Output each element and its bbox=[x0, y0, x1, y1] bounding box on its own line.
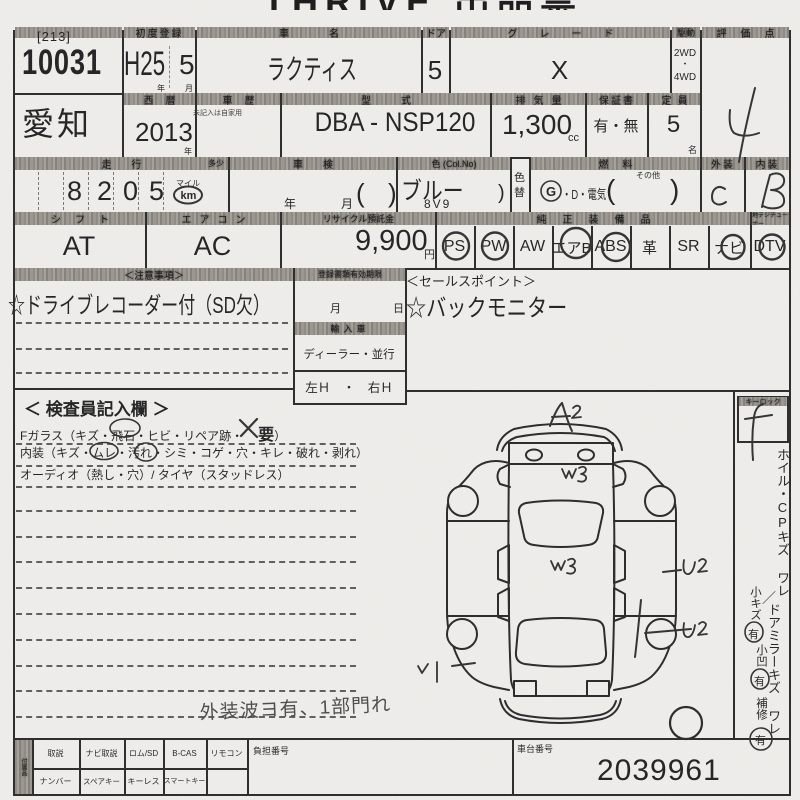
svg-text:外装波ヨ有、1部門れ: 外装波ヨ有、1部門れ bbox=[199, 694, 391, 724]
svg-text:G: G bbox=[546, 184, 556, 199]
